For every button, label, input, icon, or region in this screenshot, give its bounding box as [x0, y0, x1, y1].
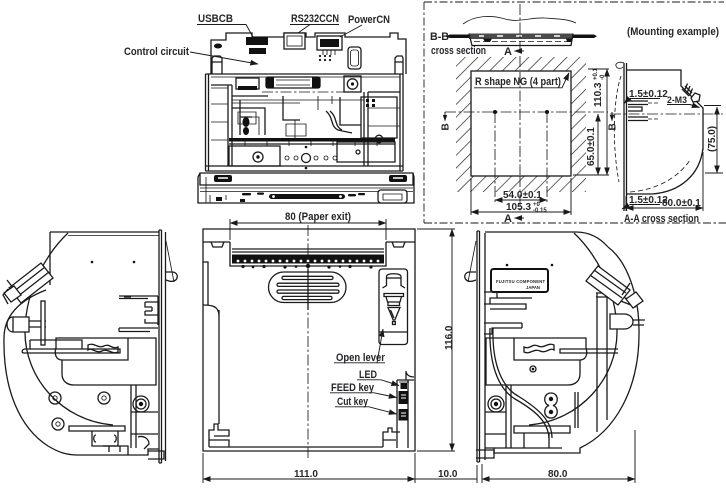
svg-text:JAPAN: JAPAN: [526, 285, 540, 290]
svg-text:Cut key: Cut key: [337, 396, 369, 408]
svg-text:R shape NG (4 part): R shape NG (4 part): [475, 76, 561, 88]
svg-text:111.0: 111.0: [294, 469, 318, 480]
svg-text:B: B: [441, 123, 452, 130]
svg-text:110.3: 110.3: [593, 82, 604, 107]
svg-text:USBCB: USBCB: [198, 13, 233, 25]
svg-text:FUJITSU COMPONENT: FUJITSU COMPONENT: [496, 279, 545, 284]
svg-text:A: A: [504, 46, 512, 58]
svg-text:-0: -0: [600, 74, 606, 80]
svg-text:(75.0): (75.0): [707, 126, 718, 152]
svg-text:65.0±0.1: 65.0±0.1: [586, 127, 597, 166]
svg-text:54.0±0.1: 54.0±0.1: [503, 190, 542, 201]
svg-text:116.0: 116.0: [444, 325, 455, 350]
svg-text:80.0: 80.0: [548, 469, 568, 480]
svg-text:(Mounting example): (Mounting example): [627, 26, 719, 38]
svg-text:B: B: [608, 123, 619, 130]
svg-text:2-M3: 2-M3: [667, 95, 687, 105]
svg-text:10.0: 10.0: [438, 469, 458, 480]
svg-text:FEED key: FEED key: [331, 382, 375, 394]
svg-text:PowerCN: PowerCN: [348, 14, 390, 26]
svg-text:RS232CCN: RS232CCN: [291, 13, 339, 25]
svg-text:A-A cross section: A-A cross section: [624, 213, 699, 225]
svg-text:Control circuit: Control circuit: [124, 46, 189, 58]
svg-text:cross section: cross section: [431, 45, 486, 57]
svg-text:A: A: [504, 213, 512, 225]
svg-text:+0.1: +0.1: [593, 67, 599, 80]
svg-text:B-B: B-B: [430, 31, 449, 43]
svg-text:LED: LED: [359, 369, 377, 381]
svg-text:80 (Paper exit): 80 (Paper exit): [285, 211, 351, 223]
svg-text:-0.15: -0.15: [533, 208, 547, 214]
svg-text:105.3: 105.3: [506, 202, 531, 213]
svg-text:80.0±0.1: 80.0±0.1: [662, 198, 701, 209]
